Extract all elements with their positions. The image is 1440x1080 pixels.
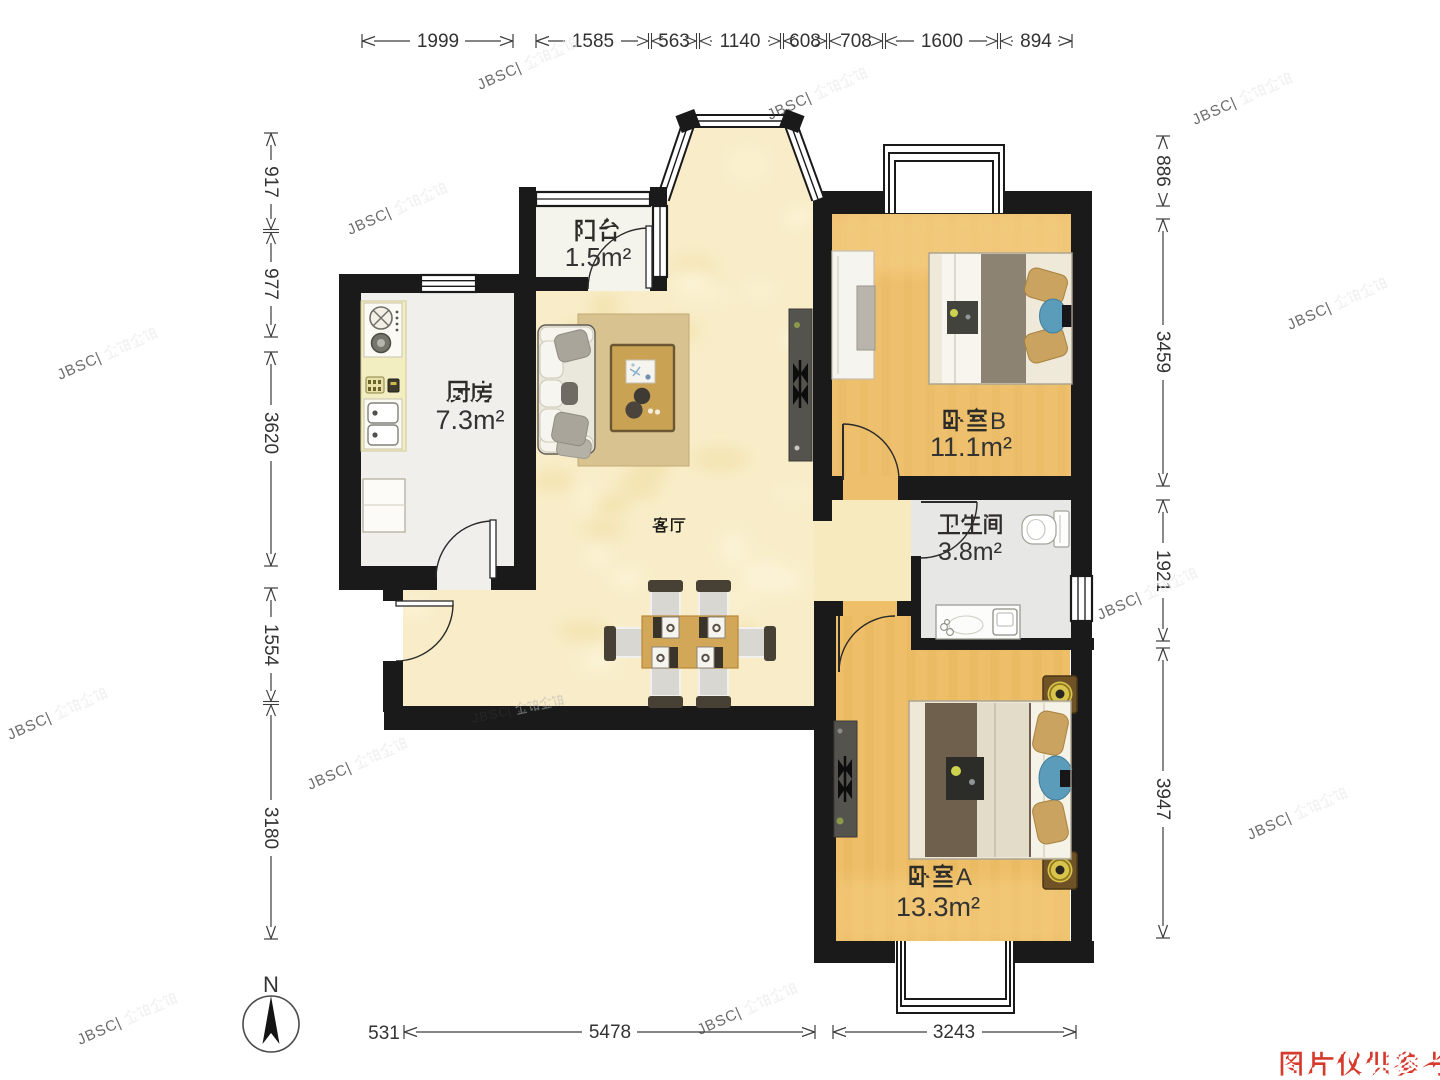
svg-text:708: 708 bbox=[840, 31, 872, 52]
svg-text:11.1m²: 11.1m² bbox=[930, 432, 1012, 462]
svg-text:3620: 3620 bbox=[260, 412, 281, 454]
svg-text:977: 977 bbox=[260, 268, 281, 300]
svg-text:917: 917 bbox=[260, 166, 281, 198]
svg-text:5478: 5478 bbox=[589, 1022, 631, 1043]
svg-text:A: A bbox=[956, 864, 972, 891]
svg-text:13.3m²: 13.3m² bbox=[896, 892, 980, 922]
svg-text:B: B bbox=[990, 408, 1006, 435]
svg-text:1999: 1999 bbox=[417, 31, 459, 52]
svg-text:1554: 1554 bbox=[260, 624, 281, 667]
svg-text:1.5m²: 1.5m² bbox=[565, 242, 632, 272]
svg-text:3947: 3947 bbox=[1152, 778, 1173, 820]
svg-text:608: 608 bbox=[789, 31, 821, 52]
svg-text:531: 531 bbox=[368, 1023, 400, 1044]
svg-text:N: N bbox=[263, 972, 279, 997]
svg-text:3180: 3180 bbox=[260, 807, 281, 849]
svg-text:1600: 1600 bbox=[921, 31, 963, 52]
svg-text:886: 886 bbox=[1152, 155, 1173, 187]
svg-text:563: 563 bbox=[658, 31, 690, 52]
svg-text:1585: 1585 bbox=[572, 31, 614, 52]
svg-text:894: 894 bbox=[1020, 31, 1052, 52]
svg-text:1140: 1140 bbox=[720, 31, 761, 52]
svg-text:3.8m²: 3.8m² bbox=[938, 538, 1002, 566]
svg-text:3459: 3459 bbox=[1152, 331, 1173, 373]
svg-text:3243: 3243 bbox=[933, 1022, 975, 1043]
svg-text:7.3m²: 7.3m² bbox=[435, 405, 504, 435]
